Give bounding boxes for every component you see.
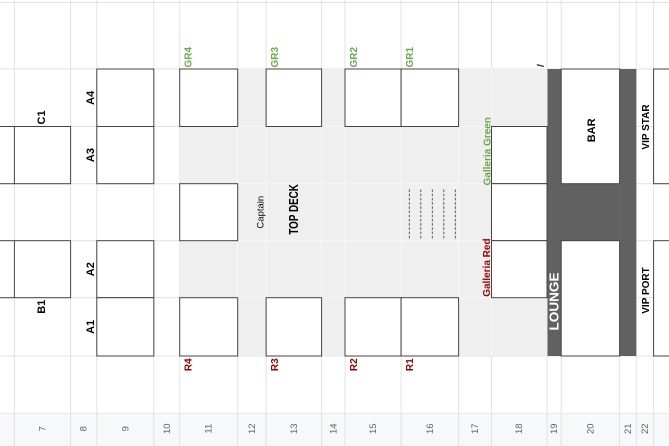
- svg-text:7: 7: [38, 426, 49, 431]
- svg-text:R1: R1: [405, 358, 416, 371]
- svg-text:Galleria Green: Galleria Green: [482, 117, 493, 185]
- svg-text:GR1: GR1: [405, 47, 416, 68]
- svg-text:GR3: GR3: [270, 47, 281, 68]
- svg-text:VIP STAR: VIP STAR: [641, 104, 652, 150]
- svg-text:BAR: BAR: [586, 118, 598, 142]
- svg-text:20: 20: [585, 423, 596, 434]
- svg-text:22: 22: [640, 423, 651, 434]
- svg-text:Galleria Red: Galleria Red: [482, 238, 493, 296]
- svg-text:VIP PORT: VIP PORT: [641, 267, 652, 314]
- svg-text:R2: R2: [349, 358, 360, 371]
- svg-text:A1: A1: [85, 320, 97, 334]
- svg-text:TOP DECK: TOP DECK: [286, 184, 301, 235]
- svg-text:B1: B1: [36, 300, 48, 314]
- svg-text:A4: A4: [85, 90, 97, 105]
- svg-text:GR4: GR4: [184, 47, 195, 68]
- svg-text:15: 15: [368, 423, 379, 434]
- svg-text:18: 18: [514, 423, 525, 434]
- svg-text:A2: A2: [85, 262, 97, 276]
- svg-text:R4: R4: [184, 358, 195, 371]
- svg-text:8: 8: [79, 426, 90, 431]
- svg-text:12: 12: [247, 423, 258, 434]
- svg-text:C1: C1: [36, 110, 48, 124]
- svg-text:16: 16: [425, 423, 436, 434]
- svg-text:11: 11: [204, 424, 215, 434]
- svg-text:14: 14: [328, 423, 339, 434]
- svg-text:A3: A3: [85, 148, 97, 162]
- svg-text:9: 9: [120, 426, 131, 431]
- svg-text:Captain: Captain: [255, 196, 266, 229]
- svg-text:21: 21: [623, 423, 634, 434]
- svg-text:R3: R3: [270, 358, 281, 371]
- svg-text:LOUNGE: LOUNGE: [547, 272, 562, 330]
- svg-text:10: 10: [162, 423, 173, 434]
- svg-text:17: 17: [470, 423, 481, 434]
- svg-text:GR2: GR2: [349, 47, 360, 68]
- svg-text:19: 19: [549, 423, 560, 434]
- svg-text:13: 13: [289, 423, 300, 434]
